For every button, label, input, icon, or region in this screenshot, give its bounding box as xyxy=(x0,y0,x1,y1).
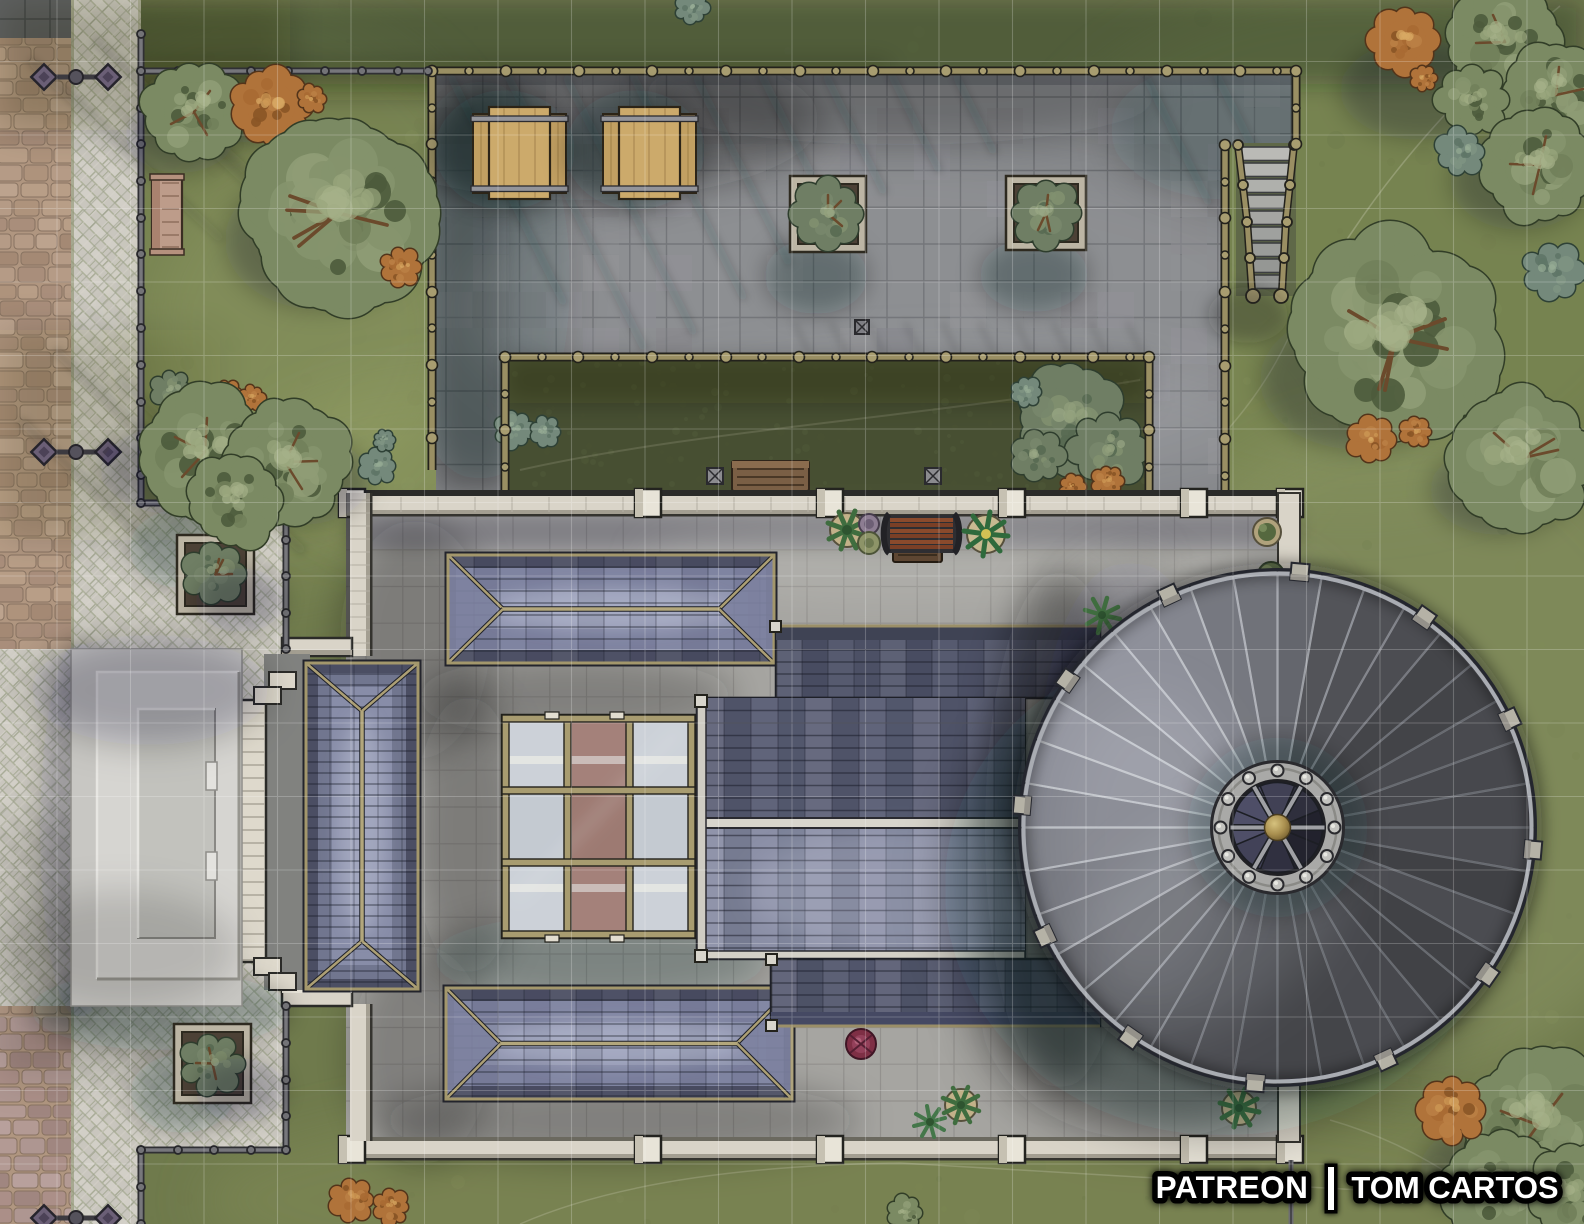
svg-text:TOM CARTOS: TOM CARTOS xyxy=(1351,1170,1558,1205)
svg-text:PATREON: PATREON xyxy=(1156,1169,1309,1205)
